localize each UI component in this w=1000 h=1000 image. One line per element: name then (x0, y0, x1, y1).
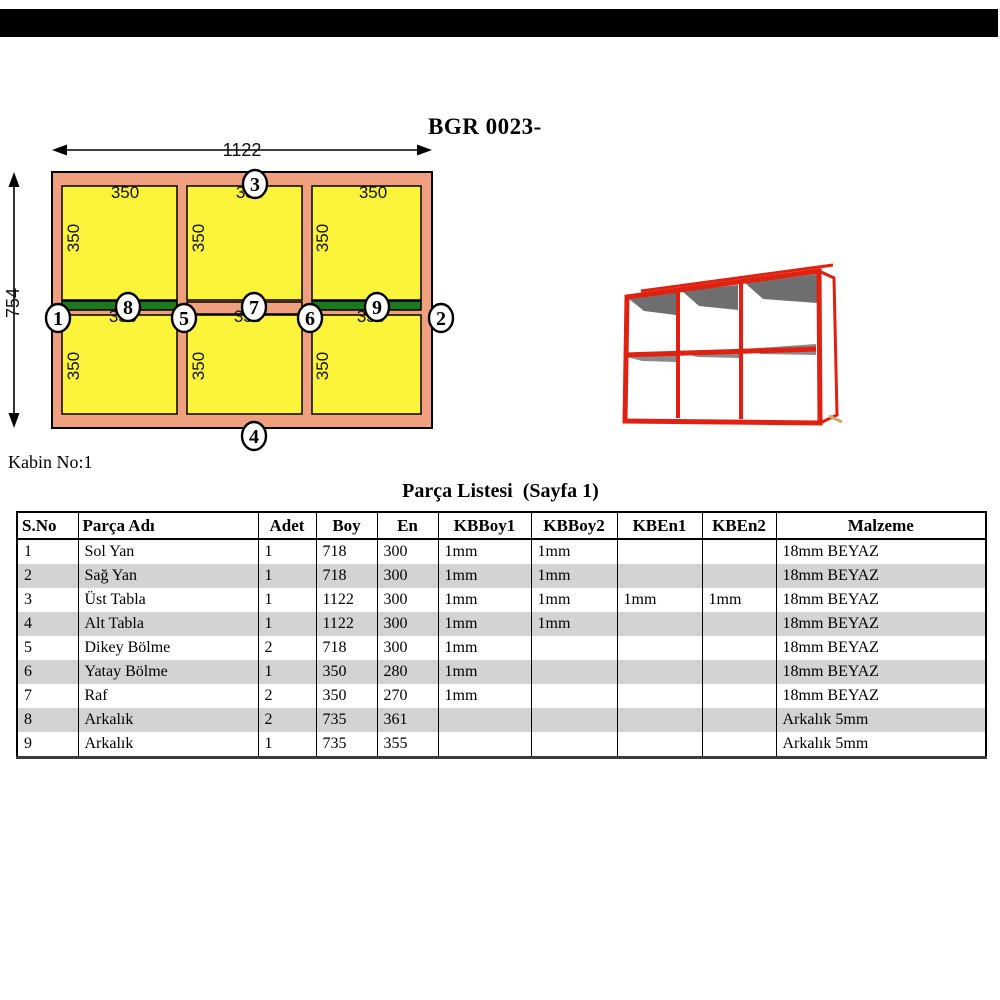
table-row: 3Üst Tabla 11122 3001mm 1mm1mm 1mm18mm B… (17, 588, 986, 612)
col-header-adet: Adet (258, 512, 316, 539)
arrow-down-icon (9, 413, 20, 428)
table-row: 2Sağ Yan 1718 3001mm 1mm 18mm BEYAZ (17, 564, 986, 588)
part-marker-6: 6 (298, 304, 322, 332)
col-header-en: En (377, 512, 438, 539)
col-header-kbboy2: KBBoy2 (531, 512, 617, 539)
svg-text:350: 350 (64, 224, 83, 252)
parts-table: S.No Parça Adı Adet Boy En KBBoy1 KBBoy2… (16, 511, 987, 759)
table-row: 6Yatay Bölme 1350 2801mm 18mm BEYAZ (17, 660, 986, 684)
parts-table-container: S.No Parça Adı Adet Boy En KBBoy1 KBBoy2… (16, 511, 987, 759)
col-header-kben1: KBEn1 (617, 512, 702, 539)
svg-text:350: 350 (64, 352, 83, 380)
svg-text:350: 350 (313, 224, 332, 252)
table-row: 7Raf 2350 2701mm 18mm BEYAZ (17, 684, 986, 708)
part-marker-9: 9 (365, 293, 389, 321)
width-dimension: 1122 (52, 140, 432, 160)
svg-text:350: 350 (359, 183, 387, 202)
col-header-parca-adi: Parça Adı (78, 512, 258, 539)
col-header-kben2: KBEn2 (702, 512, 776, 539)
col-header-malzeme: Malzeme (776, 512, 986, 539)
col-header-sno: S.No (17, 512, 78, 539)
cabin-number-label: Kabin No:1 (8, 452, 93, 473)
svg-text:1: 1 (53, 308, 63, 330)
cabinet-drawing: 1122 754 350 350 350 350 350 350 350 350… (0, 100, 470, 470)
svg-text:350: 350 (189, 352, 208, 380)
part-marker-5: 5 (172, 304, 196, 332)
svg-text:5: 5 (179, 308, 189, 330)
svg-text:4: 4 (249, 426, 259, 448)
svg-text:6: 6 (305, 308, 315, 330)
height-dimension: 754 (3, 172, 23, 428)
part-marker-1: 1 (46, 304, 70, 332)
svg-text:350: 350 (111, 183, 139, 202)
part-marker-8: 8 (116, 293, 140, 321)
svg-text:7: 7 (249, 297, 259, 319)
part-marker-4: 4 (242, 422, 266, 450)
header-row: S.No Parça Adı Adet Boy En KBBoy1 KBBoy2… (17, 512, 986, 539)
parts-list-title: Parça Listesi (Sayfa 1) (16, 480, 985, 503)
cabinet-3d-render (600, 255, 860, 440)
table-row: 1Sol Yan 1718 3001mm 1mm 18mm BEYAZ (17, 539, 986, 564)
height-dimension-label: 754 (3, 288, 23, 318)
arrow-left-icon (52, 145, 67, 156)
part-marker-7: 7 (242, 293, 266, 321)
table-row: 5Dikey Bölme 2718 3001mm 18mm BEYAZ (17, 636, 986, 660)
table-row: 8Arkalık 2735 361 Arkalık 5mm (17, 708, 986, 732)
svg-text:9: 9 (372, 297, 382, 319)
arrow-right-icon (417, 145, 432, 156)
svg-text:3: 3 (250, 174, 260, 196)
width-dimension-label: 1122 (223, 140, 262, 160)
svg-text:350: 350 (189, 224, 208, 252)
svg-text:350: 350 (313, 352, 332, 380)
arrow-up-icon (9, 172, 20, 187)
table-row: 9Arkalık 1735 355 Arkalık 5mm (17, 732, 986, 758)
table-row: 4Alt Tabla 11122 3001mm 1mm 18mm BEYAZ (17, 612, 986, 636)
col-header-boy: Boy (316, 512, 377, 539)
svg-text:2: 2 (436, 308, 446, 330)
part-marker-2: 2 (429, 304, 453, 332)
part-marker-3: 3 (243, 170, 267, 198)
svg-text:8: 8 (123, 297, 133, 319)
top-black-bar (0, 9, 998, 37)
col-header-kbboy1: KBBoy1 (438, 512, 531, 539)
